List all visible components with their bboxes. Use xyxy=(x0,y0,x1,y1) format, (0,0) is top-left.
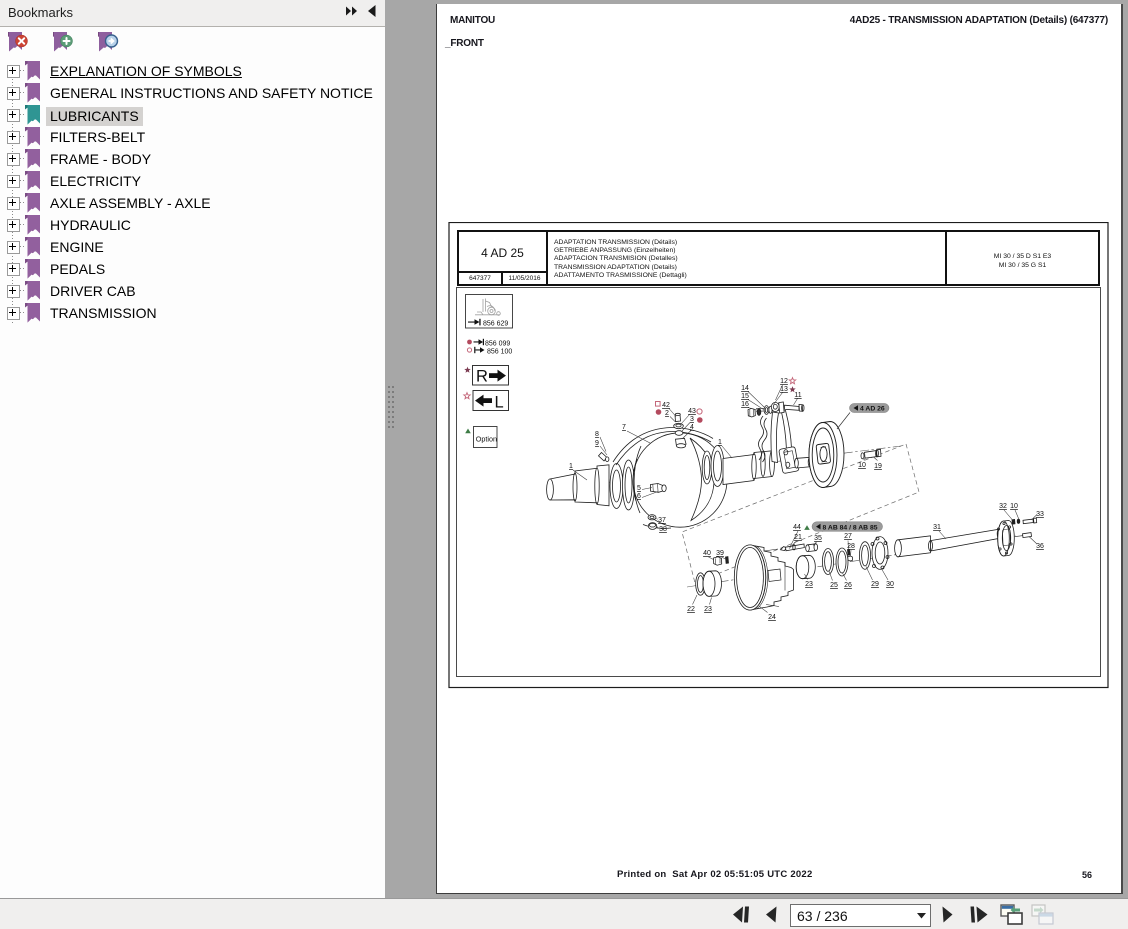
svg-text:38: 38 xyxy=(659,526,667,533)
svg-text:6: 6 xyxy=(637,493,641,500)
svg-text:42: 42 xyxy=(662,402,670,409)
svg-text:8: 8 xyxy=(595,431,599,438)
svg-text:14: 14 xyxy=(741,385,749,392)
svg-text:5: 5 xyxy=(637,485,641,492)
svg-text:32: 32 xyxy=(999,503,1007,510)
svg-text:8 AB 84 / 8 AB 85: 8 AB 84 / 8 AB 85 xyxy=(823,524,878,531)
svg-text:19: 19 xyxy=(874,463,882,470)
svg-text:30: 30 xyxy=(886,581,894,588)
svg-text:35: 35 xyxy=(814,535,822,542)
svg-text:10: 10 xyxy=(1010,503,1018,510)
svg-text:16: 16 xyxy=(741,401,749,408)
svg-text:37: 37 xyxy=(658,517,666,524)
svg-text:L: L xyxy=(495,394,504,412)
svg-text:4: 4 xyxy=(690,424,694,431)
svg-text:13: 13 xyxy=(780,386,788,393)
svg-text:23: 23 xyxy=(805,581,813,588)
svg-text:33: 33 xyxy=(1036,511,1044,518)
svg-text:1: 1 xyxy=(569,463,573,470)
svg-text:26: 26 xyxy=(844,582,852,589)
svg-text:R: R xyxy=(476,368,488,386)
svg-text:856 099: 856 099 xyxy=(485,340,510,347)
svg-text:15: 15 xyxy=(741,393,749,400)
svg-text:21: 21 xyxy=(794,534,802,541)
svg-text:11: 11 xyxy=(794,392,801,399)
svg-text:Option: Option xyxy=(476,435,497,444)
svg-text:24: 24 xyxy=(768,614,776,621)
svg-text:7: 7 xyxy=(622,424,626,431)
svg-text:3: 3 xyxy=(690,416,694,423)
svg-text:9: 9 xyxy=(595,440,599,447)
svg-text:36: 36 xyxy=(1036,543,1044,550)
svg-text:4 AD 26: 4 AD 26 xyxy=(860,406,885,413)
svg-text:2: 2 xyxy=(665,410,669,417)
svg-text:43: 43 xyxy=(688,408,696,415)
svg-text:23: 23 xyxy=(704,606,712,613)
svg-text:40: 40 xyxy=(703,550,711,557)
svg-text:25: 25 xyxy=(830,582,838,589)
svg-text:31: 31 xyxy=(933,524,941,531)
svg-text:27: 27 xyxy=(844,533,852,540)
svg-text:1: 1 xyxy=(718,439,722,446)
svg-text:12: 12 xyxy=(780,378,788,385)
svg-text:22: 22 xyxy=(687,606,695,613)
svg-text:856 629: 856 629 xyxy=(483,321,508,328)
svg-text:29: 29 xyxy=(871,581,879,588)
svg-text:28: 28 xyxy=(847,543,855,550)
svg-text:44: 44 xyxy=(793,524,801,531)
svg-text:856 100: 856 100 xyxy=(487,348,512,355)
svg-text:10: 10 xyxy=(858,462,866,469)
svg-text:39: 39 xyxy=(716,550,724,557)
